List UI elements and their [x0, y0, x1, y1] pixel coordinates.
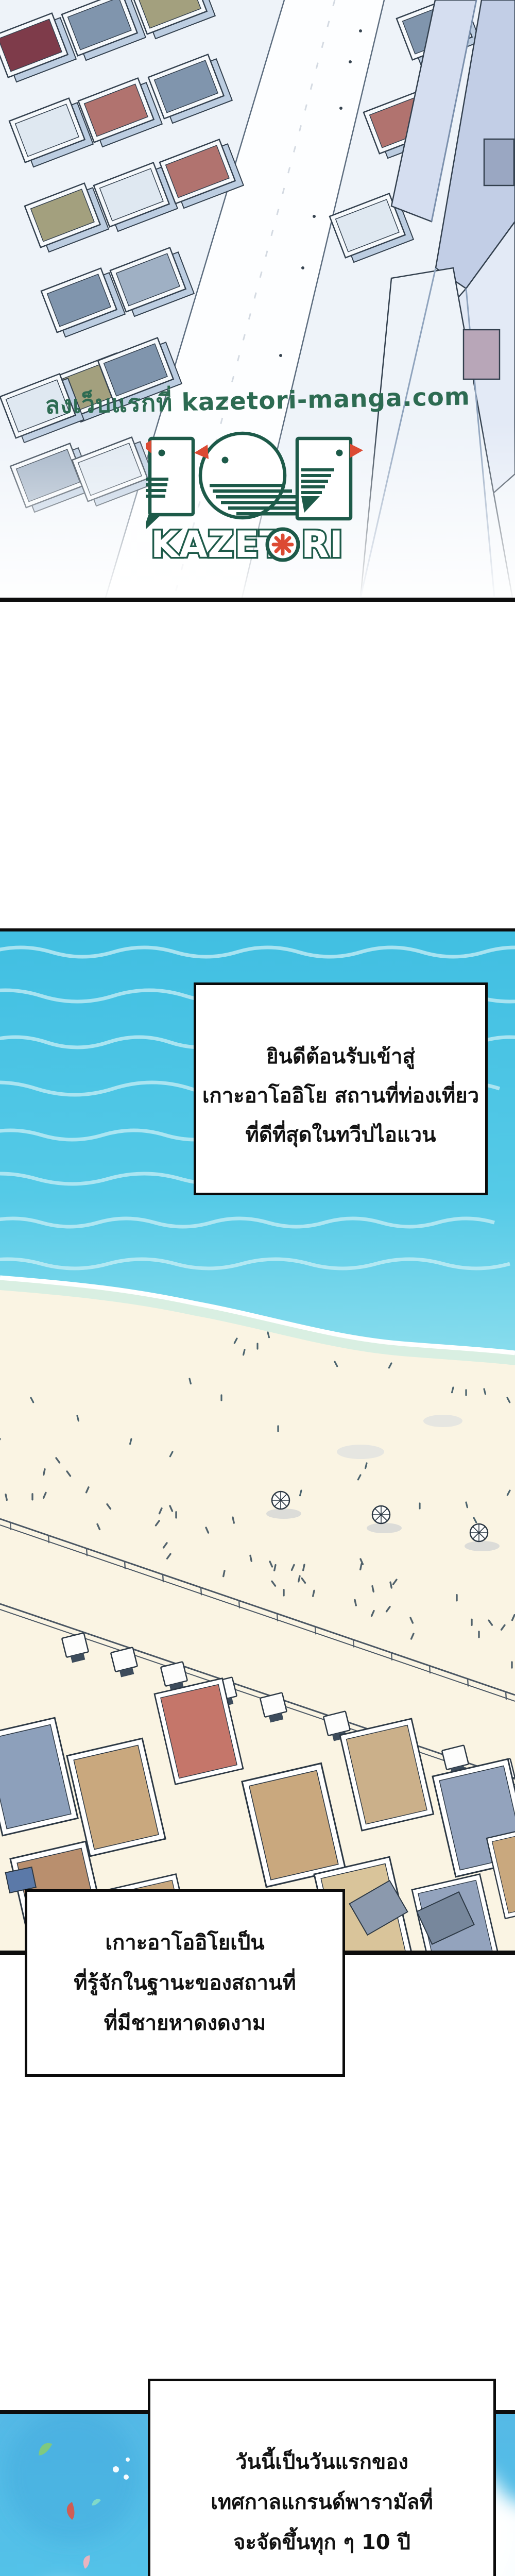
logo-text-left: KAZET — [151, 523, 285, 566]
bird-icon-middle — [194, 433, 310, 518]
narration-line: ยินดีต้อนรับเข้าสู่ — [266, 1037, 415, 1076]
narration-box-island: เกาะอาโออิโยเป็น ที่รู้จักในฐานะของสถานท… — [25, 1889, 345, 2077]
narration-line: วันนี้เป็นวันแรกของ — [235, 2442, 408, 2482]
narration-line: จะจัดขึ้นทุก ๆ 10 ปี — [233, 2522, 410, 2563]
asterisk-icon — [273, 535, 292, 554]
bird-icon-right — [297, 438, 363, 519]
narration-box-festival: วันนี้เป็นวันแรกของ เทศกาลแกรนด์พารามัลท… — [148, 2379, 496, 2576]
bird-icon-left — [146, 438, 193, 532]
kazetori-logo: KAZET RI — [146, 429, 367, 567]
logo-text-right: RI — [301, 523, 344, 566]
logo-wordmark: KAZET RI — [151, 523, 344, 566]
narration-box-welcome: ยินดีต้อนรับเข้าสู่ เกาะอาโออิโย สถานที่… — [194, 982, 488, 1195]
narration-line: ที่ดีที่สุดในทวีปไอแวน — [246, 1115, 436, 1155]
manga-page: { "page": {"type": "manga-webtoon-page",… — [0, 0, 515, 2576]
narration-line: เกาะอาโออิโยเป็น — [105, 1923, 264, 1963]
panel-city-scene: ลงเว็บแรกที่ kazetori-manga.com — [0, 0, 515, 602]
narration-line: ที่รู้จักในฐานะของสถานที่ — [74, 1963, 296, 2003]
narration-line: เกาะอาโออิโย สถานที่ท่องเที่ยว — [202, 1076, 479, 1115]
narration-line: เทศกาลแกรนด์พารามัลที่ — [211, 2482, 433, 2522]
narration-line: ที่มีชายหาดงดงาม — [104, 2003, 266, 2043]
